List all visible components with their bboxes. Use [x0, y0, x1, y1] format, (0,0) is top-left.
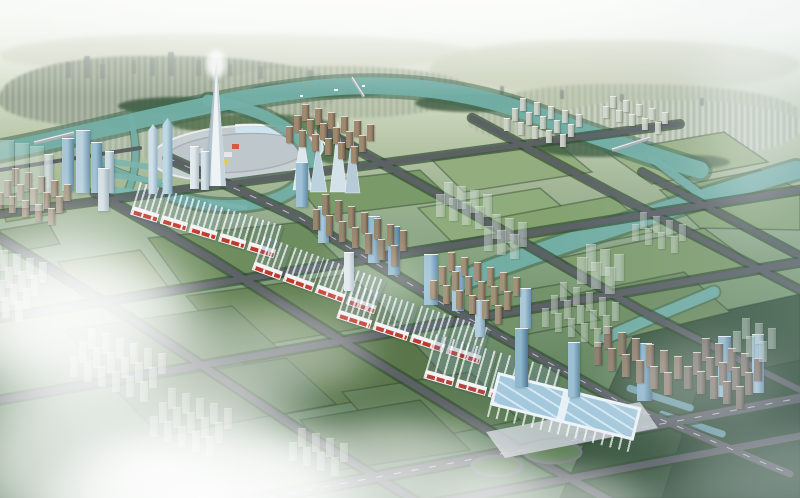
aerial-city-masterplan-rendering	[0, 0, 800, 498]
cloud-puff	[230, 408, 560, 498]
cloud-puff	[0, 200, 210, 430]
cloud-puff	[310, 246, 450, 316]
clouds-layer	[0, 0, 800, 498]
cloud-puff	[0, 0, 800, 50]
cloud-puff	[150, 296, 390, 406]
cloud-puff	[660, 418, 800, 498]
cloud-puff	[30, 420, 390, 498]
cloud-puff	[600, 330, 800, 440]
cloud-puff	[0, 255, 220, 395]
cloud-puff	[0, 340, 350, 498]
cloud-puff	[420, 458, 660, 498]
cloud-puff	[688, 0, 800, 240]
cloud-puff	[60, 470, 800, 498]
